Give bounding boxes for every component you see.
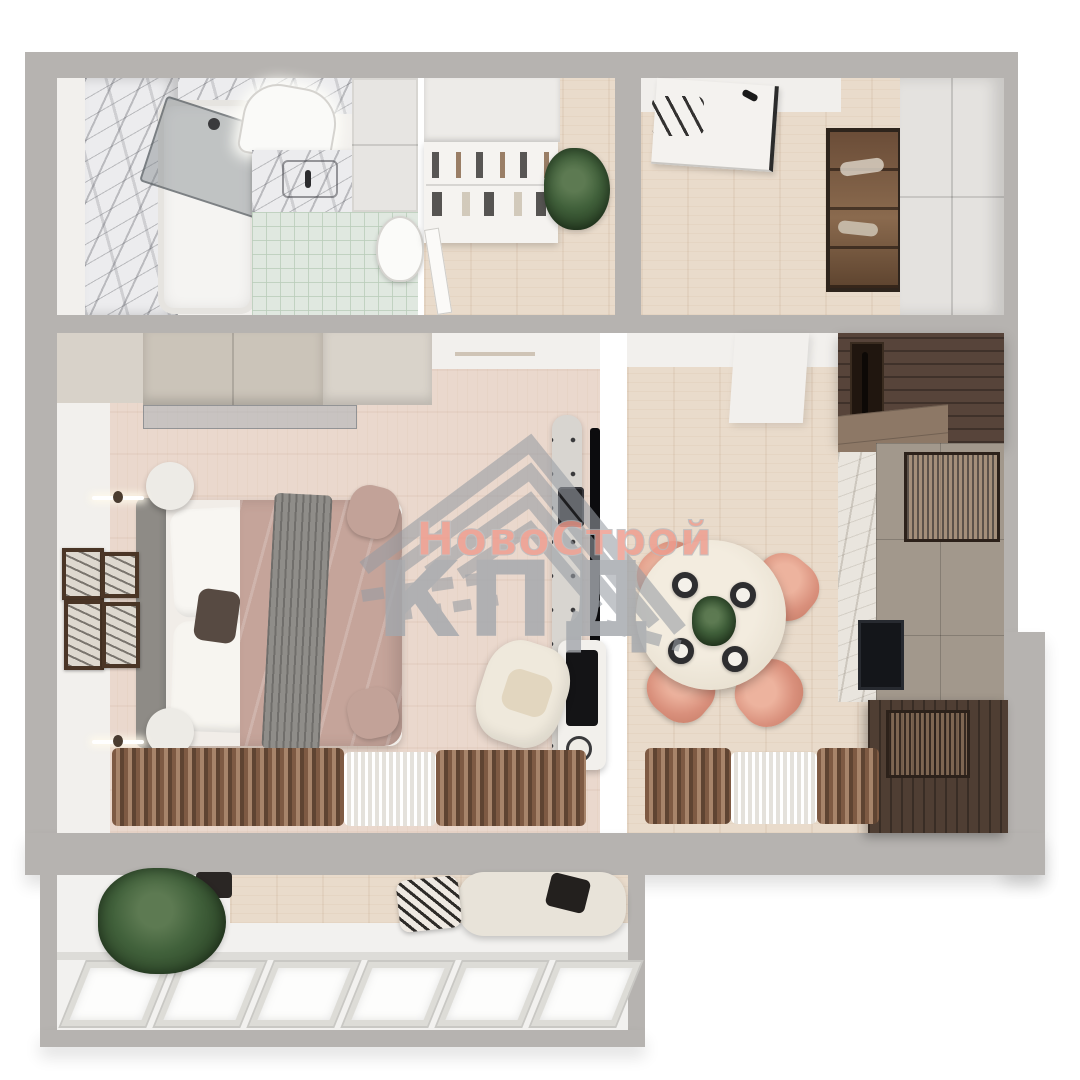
gallery-frame-2 — [101, 552, 139, 598]
sconce-top-dot-icon — [113, 491, 123, 503]
living-curtain-sheer — [731, 752, 817, 824]
bedroom-curtain-right — [436, 750, 586, 826]
wall-left — [25, 52, 57, 875]
balcony-bottom-wall — [40, 1030, 645, 1047]
bedroom-top-wall — [432, 333, 600, 369]
bedroom-wardrobe-side — [323, 333, 432, 405]
vanity-faucet-icon — [305, 170, 311, 188]
black-oven — [858, 620, 904, 690]
ribbed-glass-cabinet-upper — [904, 452, 1000, 542]
wall-mid-horizontal — [25, 315, 1018, 333]
wall-right-upper — [1004, 52, 1018, 634]
balcony-right-wall — [628, 875, 645, 1032]
bedroom-wardrobe-stub — [57, 333, 143, 403]
living-curtain-right — [817, 748, 879, 824]
shower-head-icon — [208, 118, 220, 130]
entry-wardrobe-seam-v — [951, 78, 953, 315]
living-wall-tongue — [729, 333, 809, 423]
shoe-shelf-lines — [830, 132, 898, 288]
console-black-tray — [558, 487, 584, 527]
gallery-frame-3 — [64, 600, 104, 670]
coat-hooks-icon — [652, 96, 704, 136]
shelf-items-row2 — [432, 192, 550, 216]
bedroom-curtain-left — [112, 748, 344, 826]
hallway-plant — [544, 148, 610, 230]
kitchen-handle-icon — [862, 352, 868, 416]
floorplan-render: НовоСтрой КПД — [0, 0, 1080, 1080]
table-plate-3 — [668, 638, 694, 664]
wall-top — [25, 52, 1018, 78]
lounge-chair — [458, 872, 626, 936]
gallery-frame-4 — [102, 602, 140, 668]
table-plate-4 — [722, 646, 748, 672]
shelf-items-row1 — [432, 152, 550, 178]
wall-hall-entry-divider — [615, 52, 641, 315]
bathroom-cabinet-seam — [352, 144, 418, 146]
nightstand-top — [146, 462, 194, 510]
bedroom-door-threshold — [455, 352, 535, 356]
table-plate-1 — [672, 572, 698, 598]
shelf-divider — [426, 184, 556, 186]
wardrobe-glass-vitrine — [143, 405, 357, 429]
living-curtain-left — [645, 748, 731, 824]
wardrobe-seam-1 — [232, 333, 234, 405]
gallery-frame-1 — [62, 548, 104, 600]
hall-wardrobe — [424, 78, 560, 142]
patterned-pillow — [395, 875, 462, 933]
wall-bottom-band — [25, 833, 1045, 875]
table-plate-2 — [730, 582, 756, 608]
toilet — [376, 216, 424, 282]
balcony-left-wall — [40, 875, 57, 1047]
desk-black-top — [566, 650, 598, 726]
bedroom-curtain-sheer — [344, 752, 436, 826]
table-centerpiece-plant — [692, 596, 736, 646]
bed-accent-pillow-dark — [193, 587, 242, 644]
sconce-bottom-dot-icon — [113, 735, 123, 747]
ribbed-glass-cabinet-lower — [886, 710, 970, 778]
balcony-plant — [98, 868, 226, 974]
